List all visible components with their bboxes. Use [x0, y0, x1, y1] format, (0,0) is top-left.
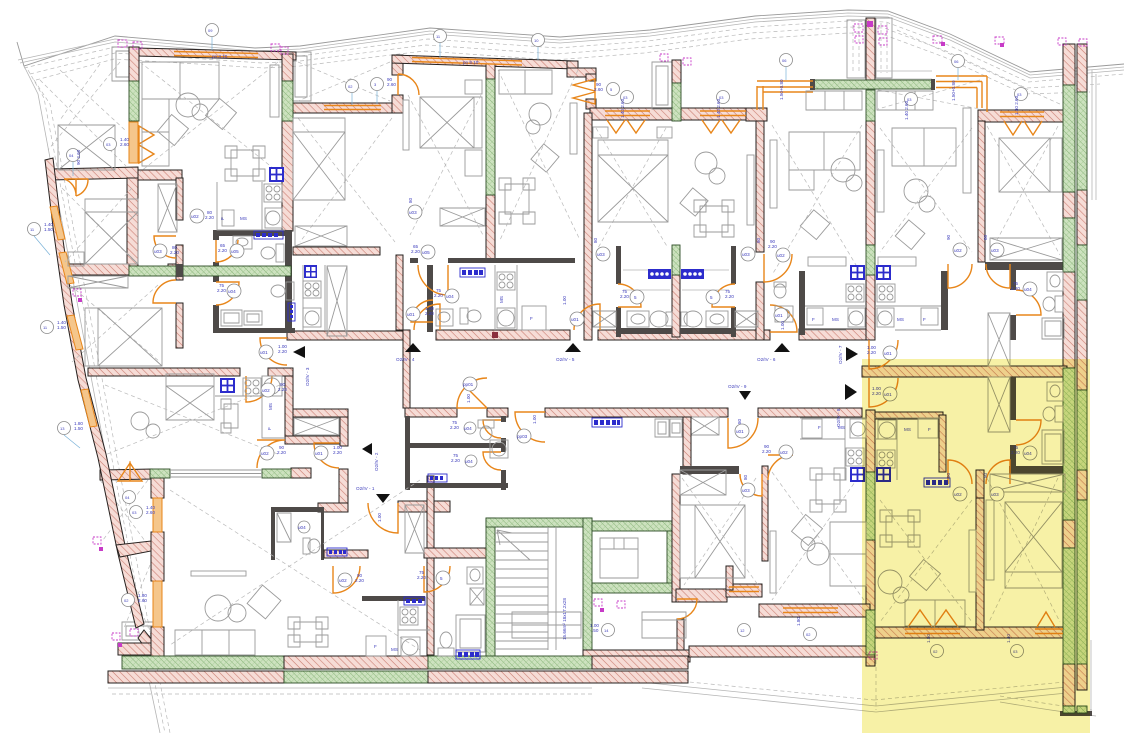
svg-text:09: 09 [208, 28, 213, 33]
svg-text:90: 90 [946, 234, 951, 240]
svg-text:u04: u04 [298, 525, 306, 530]
svg-text:u03: u03 [409, 210, 417, 215]
svg-text:80: 80 [983, 234, 988, 240]
svg-text:2.20: 2.20 [333, 450, 342, 455]
svg-text:MS: MS [499, 296, 504, 303]
svg-text:O2/IV - 4: O2/IV - 4 [396, 357, 415, 362]
svg-text:2.20: 2.20 [450, 425, 459, 430]
svg-text:1.40 2.60: 1.40 2.60 [904, 100, 909, 120]
svg-text:MS: MS [897, 317, 904, 322]
svg-text:u03: u03 [154, 249, 162, 254]
svg-text:u01: u01 [407, 312, 415, 317]
svg-text:80: 80 [408, 197, 413, 203]
svg-text:u04: u04 [465, 459, 473, 464]
svg-text:02: 02 [348, 84, 353, 89]
svg-text:2.20: 2.20 [277, 450, 286, 455]
svg-text:2.20: 2.20 [768, 244, 777, 249]
svg-text:04: 04 [69, 153, 74, 158]
svg-text:2.20: 2.20 [762, 449, 771, 454]
svg-text:u05: u05 [231, 249, 239, 254]
svg-text:2.60: 2.60 [387, 82, 396, 87]
svg-text:90 2.60: 90 2.60 [76, 149, 81, 165]
svg-text:pn 5.10: pn 5.10 [463, 60, 479, 65]
svg-text:F: F [374, 644, 377, 649]
svg-text:2.60: 2.60 [146, 510, 155, 515]
svg-text:u04: u04 [228, 289, 236, 294]
svg-text:1.50: 1.50 [44, 227, 53, 232]
svg-text:u04: u04 [1024, 287, 1032, 292]
svg-text:u01: u01 [775, 313, 783, 318]
svg-text:F: F [923, 317, 926, 322]
svg-text:O2/IV - 5: O2/IV - 5 [556, 357, 575, 362]
svg-text:.50: .50 [592, 628, 599, 633]
svg-text:2.20: 2.20 [355, 578, 364, 583]
svg-text:2.20: 2.20 [867, 350, 876, 355]
svg-text:pp01: pp01 [463, 382, 474, 387]
svg-text:1.00: 1.00 [780, 321, 785, 330]
svg-text:1.40 2.60: 1.40 2.60 [1014, 95, 1019, 115]
svg-text:u02: u02 [780, 450, 788, 455]
svg-text:2.20: 2.20 [278, 387, 287, 392]
svg-text:u02: u02 [777, 253, 785, 258]
svg-text:F: F [530, 316, 533, 321]
svg-text:O2/IV - 3: O2/IV - 3 [305, 367, 310, 386]
svg-text:u02: u02 [262, 388, 270, 393]
svg-text:06: 06 [954, 59, 959, 64]
svg-text:1.50: 1.50 [74, 426, 83, 431]
svg-text:u01: u01 [315, 451, 323, 456]
svg-text:1.40 2.60: 1.40 2.60 [620, 98, 625, 118]
svg-text:O2/IV - 1: O2/IV - 1 [356, 486, 375, 491]
svg-text:1.80: 1.80 [796, 617, 801, 626]
svg-text:1.50+0.80: 1.50+0.80 [951, 80, 956, 101]
svg-text:F: F [812, 317, 815, 322]
svg-text:u01: u01 [571, 317, 579, 322]
svg-text:1.40 2.60: 1.40 2.60 [716, 98, 721, 118]
svg-text:2.60: 2.60 [594, 87, 603, 92]
svg-text:80: 80 [756, 237, 761, 243]
svg-text:u03: u03 [597, 252, 605, 257]
svg-text:O2/IV - 6: O2/IV - 6 [757, 357, 776, 362]
svg-text:12: 12 [740, 628, 745, 633]
svg-text:u03: u03 [742, 488, 750, 493]
svg-text:u04: u04 [464, 426, 472, 431]
svg-text:u01: u01 [884, 351, 892, 356]
svg-text:F: F [818, 425, 821, 430]
svg-text:2.20: 2.20 [217, 288, 226, 293]
svg-text:03: 03 [106, 142, 111, 147]
svg-text:2.60: 2.60 [138, 598, 147, 603]
svg-text:2.20: 2.20 [205, 215, 214, 220]
svg-text:u02: u02 [339, 578, 347, 583]
svg-text:2.20: 2.20 [170, 250, 179, 255]
svg-text:2.20: 2.20 [218, 248, 227, 253]
svg-text:MS: MS [832, 317, 839, 322]
svg-text:2.20: 2.20 [278, 349, 287, 354]
svg-text:1.50: 1.50 [57, 325, 66, 330]
svg-text:04: 04 [125, 495, 130, 500]
svg-text:O2/IV - 9: O2/IV - 9 [728, 384, 747, 389]
svg-text:2.20: 2.20 [451, 458, 460, 463]
svg-text:pp03: pp03 [517, 434, 528, 439]
svg-text:1.50+0.80: 1.50+0.80 [779, 79, 784, 100]
svg-text:u05: u05 [422, 250, 430, 255]
svg-text:2.20: 2.20 [1011, 286, 1020, 291]
svg-text:MS: MS [268, 403, 273, 410]
svg-text:MS: MS [391, 647, 398, 652]
svg-text:1.00: 1.00 [377, 513, 382, 522]
svg-text:MS: MS [240, 216, 247, 221]
svg-text:u01: u01 [260, 350, 268, 355]
svg-text:2.20: 2.20 [411, 249, 420, 254]
svg-text:10: 10 [534, 38, 539, 43]
svg-text:13: 13 [60, 426, 65, 431]
svg-text:u04: u04 [446, 294, 454, 299]
svg-text:2.20: 2.20 [417, 575, 426, 580]
svg-text:pn 3.10: pn 3.10 [212, 54, 228, 59]
svg-text:80: 80 [743, 474, 748, 480]
svg-text:80: 80 [593, 237, 598, 243]
svg-text:03: 03 [132, 510, 137, 515]
svg-text:2.20: 2.20 [434, 293, 443, 298]
svg-text:u03: u03 [991, 248, 999, 253]
svg-text:1.00: 1.00 [466, 394, 471, 403]
svg-text:5: 5 [634, 295, 637, 300]
svg-text:15.66m² 18x17.2x28: 15.66m² 18x17.2x28 [562, 598, 567, 640]
svg-text:u02: u02 [261, 451, 269, 456]
svg-text:5: 5 [440, 576, 443, 581]
svg-text:02: 02 [124, 598, 129, 603]
svg-text:1.00: 1.00 [532, 415, 537, 424]
svg-text:2.60: 2.60 [120, 142, 129, 147]
svg-text:O2/IV - 7: O2/IV - 7 [838, 345, 843, 364]
svg-text:F: F [267, 427, 272, 430]
svg-text:2.20: 2.20 [425, 311, 434, 316]
svg-text:14: 14 [604, 628, 609, 633]
svg-text:F: F [220, 217, 225, 220]
svg-text:1.00: 1.00 [562, 296, 567, 305]
svg-text:5: 5 [710, 295, 713, 300]
svg-text:80: 80 [737, 418, 742, 424]
svg-text:u03: u03 [742, 252, 750, 257]
svg-text:02: 02 [806, 632, 811, 637]
svg-text:06: 06 [782, 58, 787, 63]
svg-text:2.20: 2.20 [725, 294, 734, 299]
svg-text:O2/IV - 8: O2/IV - 8 [836, 408, 841, 427]
svg-text:u02: u02 [954, 248, 962, 253]
svg-text:O2/IV - 2: O2/IV - 2 [374, 452, 379, 471]
svg-text:2.20: 2.20 [620, 294, 629, 299]
svg-text:u01: u01 [736, 429, 744, 434]
svg-text:u02: u02 [191, 214, 199, 219]
